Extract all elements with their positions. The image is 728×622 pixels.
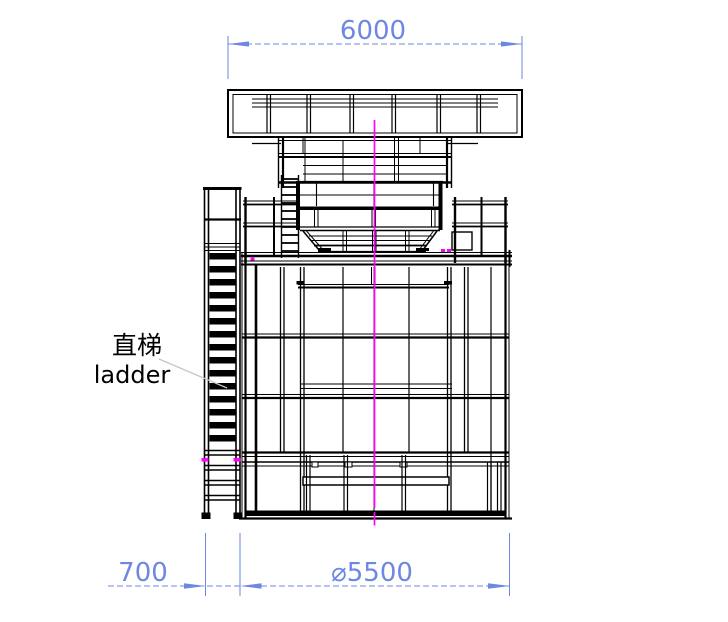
side-ladder [202, 187, 243, 519]
drawing-canvas: 6000 [0, 0, 728, 622]
centerline [202, 120, 452, 526]
lower-frame [303, 455, 501, 511]
equipment-box [296, 181, 443, 230]
arrow-right-icon [501, 41, 522, 46]
ladder-label: 直梯 ladder [94, 331, 227, 389]
arrow-5500-left-icon [240, 583, 262, 588]
ladder-label-en: ladder [94, 361, 171, 389]
arrow-5500-right-icon [488, 583, 510, 588]
dim-5500-text: ⌀5500 [331, 558, 413, 588]
dim-top-text: 6000 [340, 16, 406, 46]
upper-deck [241, 250, 512, 267]
top-dimension: 6000 [228, 16, 522, 79]
upper-tower [252, 137, 478, 188]
hopper [300, 231, 440, 252]
bottom-dimensions: 700 ⌀5500 [108, 533, 510, 596]
elevation-drawing: 6000 [0, 0, 728, 622]
access-mini-ladder [282, 175, 299, 258]
dim-700-text: 700 [118, 558, 168, 588]
arrow-700-icon [184, 583, 206, 588]
ladder-label-zh: 直梯 [112, 331, 162, 360]
arrow-left-icon [228, 41, 249, 46]
base [239, 511, 512, 519]
